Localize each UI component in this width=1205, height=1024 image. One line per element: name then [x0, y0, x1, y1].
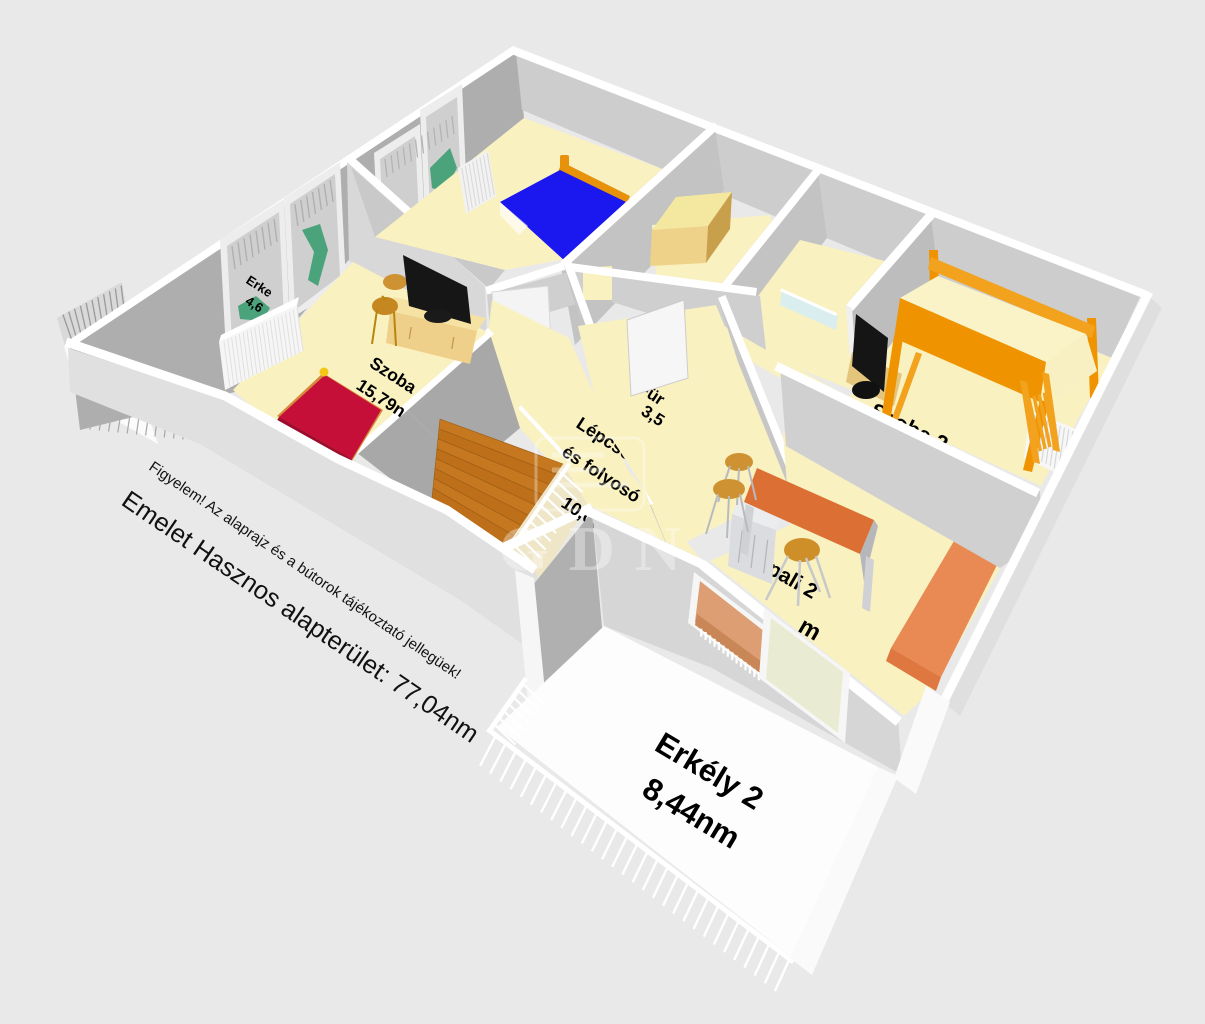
svg-text:GDN: GDN: [499, 513, 701, 584]
